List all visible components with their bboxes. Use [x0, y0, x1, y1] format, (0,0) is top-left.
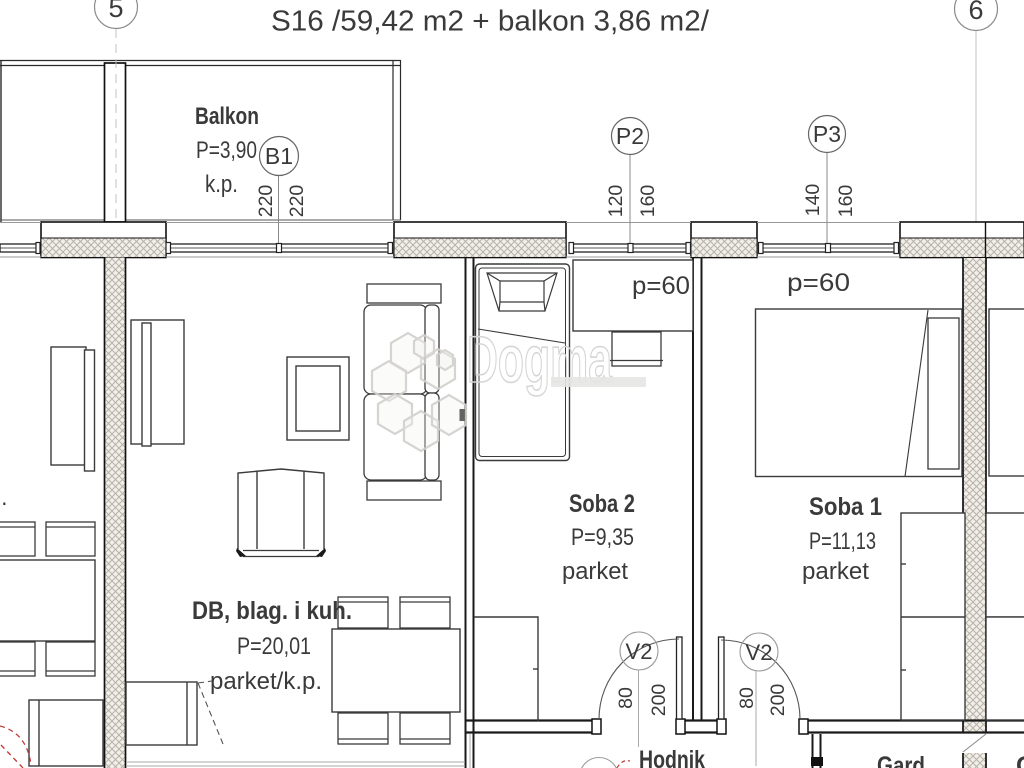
svg-text:P2: P2 [616, 123, 644, 149]
svg-text:k.p.: k.p. [205, 171, 238, 198]
svg-text:80: 80 [736, 687, 758, 709]
svg-text:Hodnik: Hodnik [639, 746, 705, 768]
svg-text:P3: P3 [813, 121, 841, 147]
svg-text:P=20,01: P=20,01 [237, 633, 311, 660]
svg-text:120: 120 [605, 185, 627, 218]
svg-text:parket: parket [562, 558, 628, 585]
svg-text:Soba 2: Soba 2 [569, 490, 635, 518]
svg-text:200: 200 [648, 684, 670, 717]
svg-text:Balkon: Balkon [195, 103, 259, 130]
svg-text:p=60: p=60 [632, 272, 690, 300]
svg-text:l.: l. [0, 484, 8, 510]
svg-text:DB, blag. i kuh.: DB, blag. i kuh. [192, 597, 352, 625]
svg-text:V2: V2 [626, 639, 653, 664]
svg-text:B1: B1 [265, 143, 293, 169]
svg-text:P=3,90: P=3,90 [196, 137, 257, 164]
svg-text:5: 5 [108, 0, 123, 23]
svg-text:6: 6 [968, 0, 983, 25]
svg-text:220: 220 [286, 185, 308, 218]
svg-text:80: 80 [615, 687, 637, 709]
svg-text:S16 /59,42 m2 + balkon 3,86 m2: S16 /59,42 m2 + balkon 3,86 m2/ [271, 6, 710, 38]
svg-text:160: 160 [637, 185, 659, 218]
svg-text:parket/k.p.: parket/k.p. [210, 668, 322, 695]
svg-text:200: 200 [767, 684, 789, 717]
svg-text:160: 160 [835, 185, 857, 218]
svg-text:220: 220 [255, 185, 277, 218]
svg-text:parket: parket [802, 558, 869, 585]
svg-text:P=11,13: P=11,13 [809, 528, 876, 555]
svg-text:G: G [1016, 752, 1024, 768]
svg-text:p=60: p=60 [787, 269, 850, 297]
svg-text:P=9,35: P=9,35 [571, 524, 634, 551]
svg-text:Gard: Gard [877, 752, 925, 768]
svg-text:Soba 1: Soba 1 [809, 493, 882, 521]
svg-text:140: 140 [802, 184, 824, 217]
svg-text:V2: V2 [746, 640, 773, 665]
